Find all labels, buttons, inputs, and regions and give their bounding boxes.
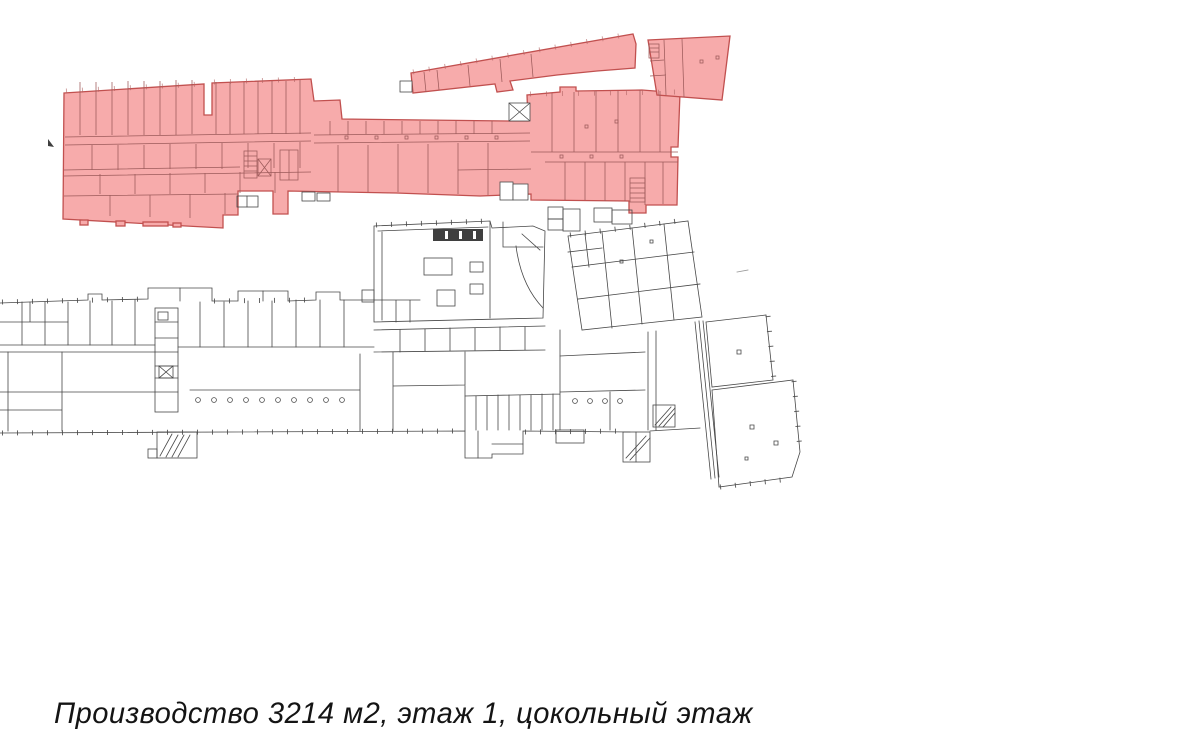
stairwell-left bbox=[148, 432, 197, 458]
stairwell-right bbox=[623, 432, 650, 462]
block-tilted-wing bbox=[568, 221, 702, 330]
wing-right bbox=[695, 315, 800, 487]
column-circles bbox=[196, 398, 623, 404]
highlight-main-band[interactable] bbox=[63, 79, 680, 228]
floorplan-svg bbox=[0, 0, 1200, 745]
floorplan-page: Производство 3214 м2, этаж 1, цокольный … bbox=[0, 0, 1200, 745]
roof-hatch-band bbox=[433, 229, 483, 241]
elevator-x-icon bbox=[509, 103, 530, 121]
highlight-right-block[interactable] bbox=[648, 36, 730, 100]
highlight-diagonal-strip[interactable] bbox=[411, 34, 636, 93]
plan-caption: Производство 3214 м2, этаж 1, цокольный … bbox=[54, 697, 753, 731]
elevator-x-icon bbox=[159, 366, 173, 378]
north-arrow-mark bbox=[48, 139, 54, 147]
window-ticks bbox=[2, 220, 800, 487]
stair-core bbox=[155, 308, 178, 412]
